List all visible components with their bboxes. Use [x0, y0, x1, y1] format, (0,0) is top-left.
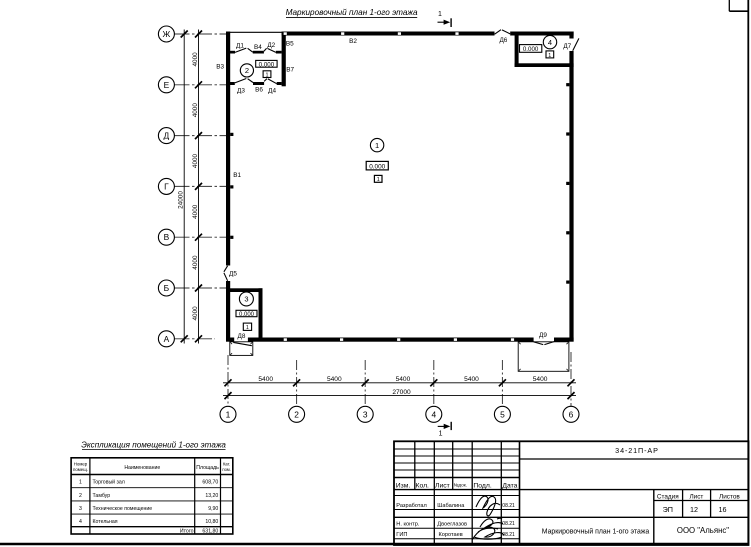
- svg-text:Д7: Д7: [563, 43, 571, 50]
- svg-text:1: 1: [226, 409, 231, 419]
- svg-text:Котельная: Котельная: [93, 519, 118, 525]
- svg-text:В2: В2: [349, 38, 357, 45]
- svg-text:08.21: 08.21: [502, 503, 515, 509]
- svg-text:2: 2: [79, 493, 82, 499]
- svg-text:16: 16: [719, 505, 727, 514]
- svg-text:Площадь: Площадь: [196, 465, 219, 471]
- svg-text:4000: 4000: [192, 52, 199, 67]
- svg-text:3: 3: [244, 295, 248, 304]
- svg-text:5400: 5400: [464, 376, 479, 383]
- svg-text:Техническое помещение: Техническое помещение: [93, 506, 153, 512]
- svg-text:Итого: Итого: [180, 528, 194, 534]
- svg-text:Шабалина: Шабалина: [437, 503, 465, 509]
- svg-text:Номер: Номер: [74, 462, 88, 467]
- svg-text:пом.: пом.: [222, 467, 230, 472]
- svg-text:№док.: №док.: [454, 483, 467, 488]
- svg-text:1: 1: [79, 480, 82, 486]
- svg-text:Д3: Д3: [237, 87, 245, 94]
- svg-text:1: 1: [375, 141, 379, 150]
- svg-text:Подл.: Подл.: [473, 482, 491, 489]
- svg-text:0.000: 0.000: [523, 46, 539, 53]
- svg-text:Д5: Д5: [229, 271, 237, 278]
- svg-text:Стадия: Стадия: [657, 494, 679, 501]
- svg-text:1: 1: [266, 73, 269, 79]
- svg-text:1: 1: [246, 325, 249, 331]
- svg-text:9,90: 9,90: [208, 506, 218, 512]
- svg-text:1: 1: [439, 431, 443, 438]
- svg-text:5400: 5400: [258, 376, 273, 383]
- svg-text:Д9: Д9: [539, 332, 547, 339]
- svg-text:10,80: 10,80: [205, 519, 218, 525]
- svg-text:Экспликация помещений 1-ого эт: Экспликация помещений 1-ого этажа: [81, 440, 226, 449]
- svg-text:Торговый зал: Торговый зал: [93, 479, 125, 486]
- svg-text:Д2: Д2: [267, 42, 275, 49]
- svg-text:Тамбур: Тамбур: [93, 493, 111, 499]
- svg-text:В7: В7: [286, 67, 294, 74]
- svg-text:В1: В1: [233, 172, 241, 179]
- svg-text:Дата: Дата: [502, 482, 517, 489]
- svg-text:Двоеглазов: Двоеглазов: [437, 522, 467, 528]
- svg-text:Д8: Д8: [238, 333, 246, 340]
- svg-text:ГИП: ГИП: [396, 532, 407, 538]
- svg-text:Е: Е: [164, 80, 170, 90]
- svg-text:13,20: 13,20: [205, 493, 218, 499]
- svg-text:5400: 5400: [533, 376, 548, 383]
- svg-text:34-21П-АР: 34-21П-АР: [615, 446, 659, 455]
- svg-text:В5: В5: [286, 40, 294, 47]
- svg-text:4000: 4000: [192, 153, 199, 168]
- svg-text:5400: 5400: [327, 376, 342, 383]
- svg-text:Наименование: Наименование: [124, 465, 160, 471]
- svg-text:08.21: 08.21: [502, 532, 515, 538]
- svg-text:Разработал: Разработал: [396, 503, 426, 509]
- svg-text:Изм.: Изм.: [396, 482, 411, 489]
- svg-text:0.000: 0.000: [239, 312, 255, 318]
- svg-text:Кол.: Кол.: [416, 482, 430, 489]
- svg-text:4000: 4000: [192, 306, 199, 321]
- svg-text:27000: 27000: [392, 389, 411, 396]
- svg-text:Лист: Лист: [435, 482, 450, 489]
- svg-text:1: 1: [377, 177, 380, 183]
- svg-text:631,80: 631,80: [202, 528, 218, 534]
- svg-text:помещ.: помещ.: [73, 467, 88, 472]
- svg-text:1: 1: [548, 53, 551, 59]
- svg-text:Ж: Ж: [163, 29, 171, 39]
- svg-text:3: 3: [79, 506, 82, 512]
- svg-text:12: 12: [690, 505, 698, 514]
- svg-text:Д: Д: [164, 131, 170, 141]
- svg-text:Маркировочный план 1-ого этажа: Маркировочный план 1-ого этажа: [542, 527, 650, 535]
- svg-text:Коротаев: Коротаев: [439, 532, 463, 538]
- svg-text:4: 4: [431, 409, 436, 419]
- svg-text:2: 2: [294, 409, 299, 419]
- svg-text:В6: В6: [255, 87, 263, 94]
- svg-text:А: А: [164, 334, 170, 344]
- svg-text:Н. контр.: Н. контр.: [396, 522, 420, 528]
- svg-text:Г: Г: [164, 181, 169, 191]
- svg-text:08.21: 08.21: [502, 521, 515, 527]
- svg-text:Д1: Д1: [236, 43, 244, 50]
- svg-text:В: В: [164, 232, 170, 242]
- svg-text:608,70: 608,70: [202, 480, 218, 486]
- svg-text:4000: 4000: [192, 204, 199, 219]
- svg-text:Листов: Листов: [719, 494, 740, 501]
- svg-text:2: 2: [245, 66, 249, 75]
- svg-text:5: 5: [500, 409, 505, 419]
- svg-text:0.000: 0.000: [259, 61, 275, 68]
- svg-text:Кат.: Кат.: [223, 462, 230, 467]
- svg-text:24000: 24000: [178, 191, 185, 209]
- svg-text:4000: 4000: [192, 103, 199, 118]
- svg-text:ЭП: ЭП: [663, 505, 673, 514]
- svg-text:Б: Б: [164, 283, 170, 293]
- svg-text:3: 3: [363, 409, 368, 419]
- svg-text:В3: В3: [216, 64, 224, 71]
- svg-text:5400: 5400: [396, 376, 411, 383]
- svg-text:4: 4: [79, 519, 82, 525]
- svg-text:1: 1: [438, 11, 442, 18]
- svg-text:ООО "Альянс": ООО "Альянс": [677, 526, 729, 535]
- svg-text:0.000: 0.000: [369, 163, 385, 170]
- svg-text:В4: В4: [254, 44, 262, 51]
- svg-text:Д6: Д6: [499, 37, 507, 44]
- svg-text:4: 4: [548, 38, 552, 47]
- svg-text:4000: 4000: [192, 255, 199, 270]
- svg-text:Д4: Д4: [268, 87, 276, 94]
- svg-text:Маркировочный план 1-ого этажа: Маркировочный план 1-ого этажа: [286, 8, 418, 17]
- svg-text:Лист: Лист: [689, 494, 703, 501]
- svg-text:6: 6: [569, 409, 574, 419]
